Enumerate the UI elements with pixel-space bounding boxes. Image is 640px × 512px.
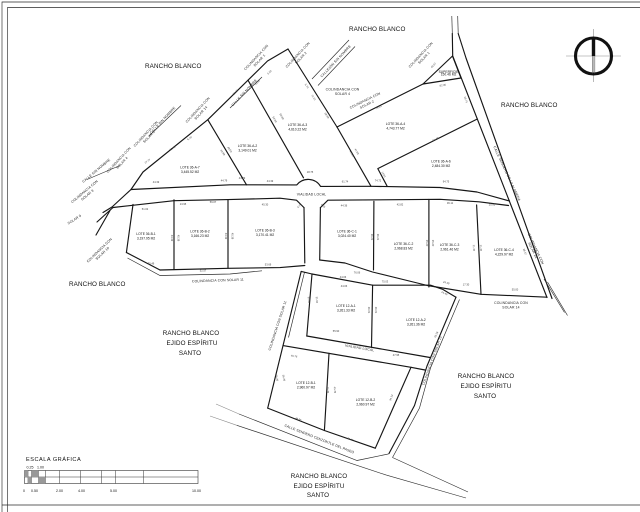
svg-text:10.00: 10.00: [192, 489, 201, 493]
svg-text:2,960.97 M2: 2,960.97 M2: [356, 402, 374, 406]
svg-text:26.01: 26.01: [374, 307, 378, 314]
svg-text:13.95: 13.95: [180, 202, 187, 206]
svg-text:2,484.30 M2: 2,484.30 M2: [432, 164, 450, 168]
svg-text:18.75: 18.75: [307, 170, 314, 174]
svg-text:94.75: 94.75: [443, 180, 450, 184]
svg-text:3,024.40 M2: 3,024.40 M2: [338, 234, 356, 238]
svg-text:SANTO: SANTO: [179, 350, 201, 357]
svg-text:45.76: 45.76: [333, 387, 338, 394]
svg-text:45.30: 45.30: [262, 203, 269, 207]
svg-text:35.49: 35.49: [148, 262, 155, 266]
svg-text:RANCHO BLANCO: RANCHO BLANCO: [501, 102, 558, 109]
svg-text:35.20: 35.20: [425, 240, 429, 247]
svg-text:31.95: 31.95: [315, 297, 320, 304]
svg-text:0: 0: [23, 489, 25, 493]
svg-text:21.30: 21.30: [472, 245, 476, 252]
svg-text:RANCHO BLANCO: RANCHO BLANCO: [291, 473, 348, 480]
svg-text:EJIDO ESPÍRITU: EJIDO ESPÍRITU: [166, 338, 217, 347]
svg-text:ESCALA GRÁFICA: ESCALA GRÁFICA: [26, 456, 81, 463]
svg-text:47.95: 47.95: [393, 353, 400, 357]
svg-text:44.79: 44.79: [239, 176, 246, 180]
svg-text:2,961.46 M2: 2,961.46 M2: [440, 247, 458, 251]
svg-text:44.36: 44.36: [341, 204, 348, 208]
svg-text:3,261.33 M2: 3,261.33 M2: [337, 308, 355, 312]
svg-text:3,261.36 M2: 3,261.36 M2: [407, 322, 425, 326]
svg-text:4,610.22 M2: 4,610.22 M2: [288, 127, 306, 131]
svg-text:26.01: 26.01: [367, 307, 371, 314]
svg-text:1.00: 1.00: [37, 466, 44, 470]
svg-text:0.50: 0.50: [31, 489, 38, 493]
svg-text:21.30: 21.30: [479, 245, 483, 252]
svg-text:150.46 M2: 150.46 M2: [441, 73, 457, 77]
svg-text:RANCHO BLANCO: RANCHO BLANCO: [349, 26, 406, 33]
svg-text:44.06: 44.06: [341, 284, 348, 288]
svg-text:3,149.01 M2: 3,149.01 M2: [238, 148, 256, 152]
svg-text:44.06: 44.06: [340, 275, 347, 279]
svg-text:35.20: 35.20: [431, 240, 435, 247]
svg-text:3,170.41 M2: 3,170.41 M2: [256, 233, 274, 237]
svg-text:55.90: 55.90: [333, 329, 340, 333]
svg-text:2.00: 2.00: [56, 489, 63, 493]
svg-text:52.57: 52.57: [200, 269, 207, 273]
svg-text:3,166.23 M2: 3,166.23 M2: [191, 234, 209, 238]
svg-text:45.76: 45.76: [326, 387, 331, 394]
svg-text:31.95: 31.95: [307, 297, 312, 304]
svg-text:RANCHO BLANCO: RANCHO BLANCO: [145, 63, 202, 70]
svg-text:45.38: 45.38: [177, 235, 181, 242]
svg-text:4,743.77 M2: 4,743.77 M2: [386, 126, 404, 130]
svg-text:51.02: 51.02: [142, 207, 149, 211]
svg-text:39.11: 39.11: [447, 201, 454, 205]
svg-text:43.39: 43.39: [224, 233, 228, 240]
svg-text:75.03: 75.03: [382, 280, 389, 284]
svg-text:5.00: 5.00: [110, 489, 117, 493]
svg-text:RANCHO BLANCO: RANCHO BLANCO: [163, 330, 220, 337]
svg-text:20.00: 20.00: [489, 203, 496, 207]
svg-text:36.21: 36.21: [376, 234, 380, 241]
svg-text:74.72: 74.72: [375, 179, 382, 183]
svg-text:3,445.52 M2: 3,445.52 M2: [181, 170, 199, 174]
svg-text:56.07: 56.07: [210, 200, 217, 204]
svg-text:VIALIDAD LOCAL: VIALIDAD LOCAL: [297, 193, 327, 197]
svg-text:45.38: 45.38: [231, 233, 235, 240]
svg-text:SANTO: SANTO: [307, 492, 329, 499]
svg-text:SANTO: SANTO: [474, 393, 496, 400]
svg-text:53.69: 53.69: [265, 263, 272, 267]
svg-text:RANCHO BLANCO: RANCHO BLANCO: [69, 281, 126, 288]
svg-text:RANCHO BLANCO: RANCHO BLANCO: [458, 373, 515, 380]
svg-text:17.30: 17.30: [463, 283, 470, 287]
svg-text:0.25: 0.25: [27, 466, 34, 470]
svg-text:76.06: 76.06: [354, 271, 361, 275]
svg-text:44.39: 44.39: [153, 180, 160, 184]
svg-text:55.00: 55.00: [512, 288, 519, 292]
svg-text:36.21: 36.21: [370, 234, 374, 241]
svg-text:3,197.95 M2: 3,197.95 M2: [137, 236, 155, 240]
svg-text:2,960.97 M2: 2,960.97 M2: [297, 385, 315, 389]
svg-text:4,229.97 M2: 4,229.97 M2: [495, 252, 513, 256]
svg-text:61.74: 61.74: [342, 179, 349, 183]
svg-text:4.00: 4.00: [78, 489, 85, 493]
svg-text:EJIDO ESPÍRITU: EJIDO ESPÍRITU: [293, 481, 344, 490]
svg-text:EJIDO ESPÍRITU: EJIDO ESPÍRITU: [460, 381, 511, 390]
svg-text:2,968.83 M2: 2,968.83 M2: [394, 246, 412, 250]
svg-text:44.79: 44.79: [221, 179, 228, 183]
svg-text:44.39: 44.39: [267, 179, 274, 183]
svg-text:42.82: 42.82: [397, 203, 404, 207]
svg-text:43.39: 43.39: [170, 235, 174, 242]
